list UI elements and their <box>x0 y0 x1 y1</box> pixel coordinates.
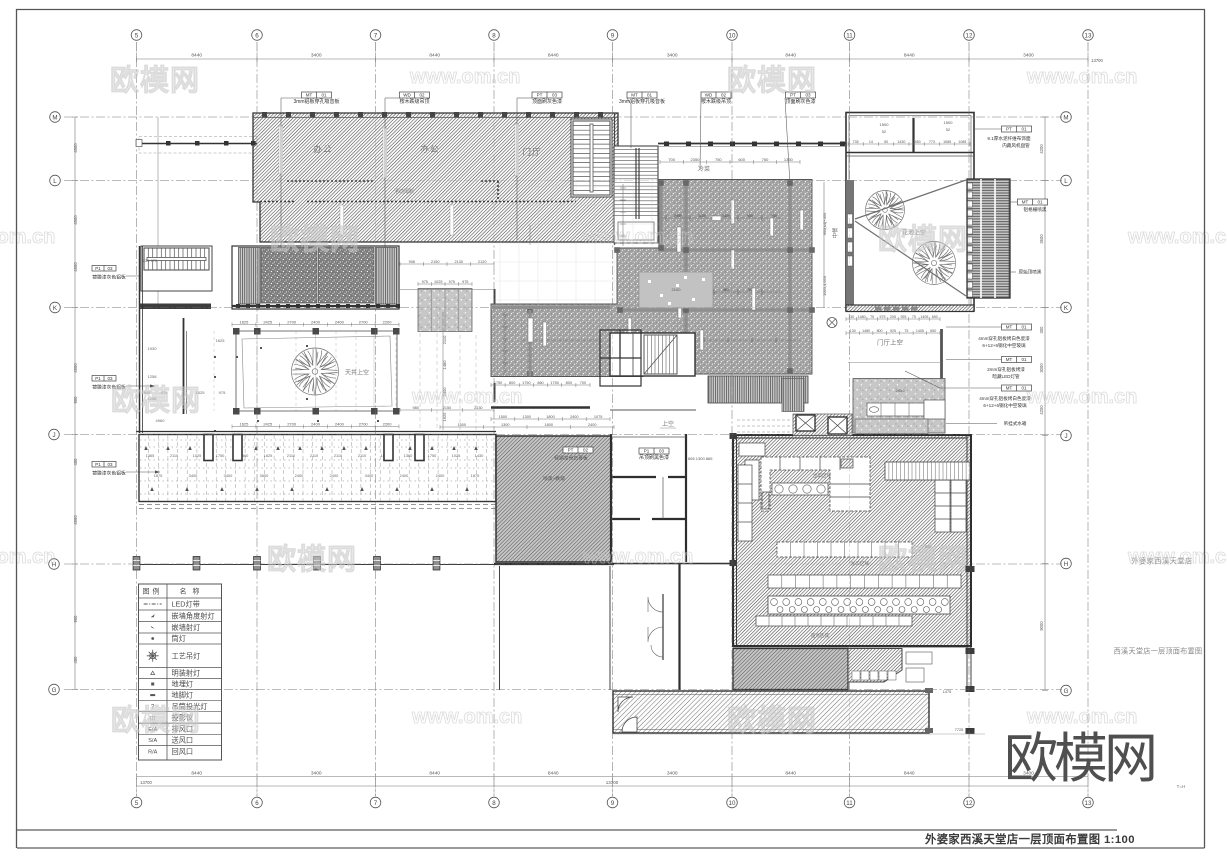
svg-text:2mm穿孔铝板烤漆: 2mm穿孔铝板烤漆 <box>987 366 1025 373</box>
svg-text:450: 450 <box>73 656 78 664</box>
svg-text:内藏风机盘管: 内藏风机盘管 <box>1002 142 1030 149</box>
svg-text:11: 11 <box>846 32 853 39</box>
svg-text:205: 205 <box>890 315 896 319</box>
svg-text:230 770: 230 770 <box>143 258 158 263</box>
svg-text:1480: 1480 <box>858 315 866 319</box>
svg-text:www.om.cn: www.om.cn <box>0 226 55 248</box>
svg-text:www.om.cn: www.om.cn <box>582 546 693 568</box>
svg-text:欧模网: 欧模网 <box>267 543 357 576</box>
svg-text:3400: 3400 <box>189 473 198 478</box>
svg-text:700: 700 <box>668 157 675 162</box>
svg-text:2110: 2110 <box>310 453 319 458</box>
svg-text:700: 700 <box>580 381 586 385</box>
svg-text:喷黑+跌级: 喷黑+跌级 <box>543 475 565 482</box>
svg-text:天井上空: 天井上空 <box>345 369 369 377</box>
svg-text:3600: 3600 <box>260 473 269 478</box>
svg-text:01: 01 <box>647 93 653 98</box>
svg-text:T=H: T=H <box>1177 784 1186 789</box>
svg-text:PT: PT <box>568 448 574 453</box>
svg-text:50: 50 <box>884 140 888 144</box>
svg-text:1500: 1500 <box>458 423 466 427</box>
svg-text:欧模网: 欧模网 <box>110 64 200 97</box>
svg-text:6: 6 <box>255 32 259 39</box>
svg-text:925: 925 <box>900 315 906 319</box>
svg-text:www.om.cn: www.om.cn <box>1127 546 1227 568</box>
svg-text:13700: 13700 <box>1091 58 1103 63</box>
svg-text:2200: 2200 <box>383 319 393 324</box>
svg-text:3mm铝板穿孔吸音板: 3mm铝板穿孔吸音板 <box>619 98 665 105</box>
svg-text:2110: 2110 <box>358 453 367 458</box>
svg-text:03: 03 <box>659 449 665 454</box>
svg-text:工艺吊灯: 工艺吊灯 <box>172 651 201 660</box>
svg-text:1258: 1258 <box>148 374 158 379</box>
svg-text:950: 950 <box>723 288 729 292</box>
svg-text:8440: 8440 <box>904 771 915 777</box>
svg-text:1405: 1405 <box>916 329 924 333</box>
svg-text:735: 735 <box>853 140 859 144</box>
svg-text:2350: 2350 <box>691 157 701 162</box>
svg-text:52: 52 <box>946 128 950 132</box>
svg-text:650: 650 <box>932 315 938 319</box>
svg-text:1025: 1025 <box>434 280 442 284</box>
svg-text:轻钢龙骨石膏板: 轻钢龙骨石膏板 <box>554 455 588 462</box>
svg-text:筒灯: 筒灯 <box>172 634 186 643</box>
svg-text:1500: 1500 <box>944 120 954 125</box>
svg-text:1750: 1750 <box>216 453 225 458</box>
svg-text:2400: 2400 <box>335 421 345 426</box>
svg-text:3000: 3000 <box>1039 363 1044 373</box>
svg-text:1875: 1875 <box>471 473 480 478</box>
svg-text:800: 800 <box>877 329 883 333</box>
svg-text:7: 7 <box>374 32 378 39</box>
svg-text:12: 12 <box>966 800 973 807</box>
svg-text:1300: 1300 <box>522 415 530 419</box>
svg-text:1300: 1300 <box>501 423 509 427</box>
svg-text:桉木跌级吊顶: 桉木跌级吊顶 <box>399 98 429 105</box>
svg-text:1025: 1025 <box>452 453 461 458</box>
svg-text:13: 13 <box>1085 32 1092 39</box>
svg-text:8440: 8440 <box>191 771 202 777</box>
svg-text:J: J <box>52 432 55 439</box>
svg-text:2130: 2130 <box>455 260 463 264</box>
svg-text:2110: 2110 <box>287 453 296 458</box>
svg-text:2425: 2425 <box>263 319 273 324</box>
svg-text:8440: 8440 <box>429 771 440 777</box>
svg-text:975: 975 <box>462 280 468 284</box>
svg-text:外婆家西溪天堂店一层顶面布置图 1:100: 外婆家西溪天堂店一层顶面布置图 1:100 <box>924 832 1135 846</box>
svg-text:WD: WD <box>403 93 411 98</box>
svg-text:3400: 3400 <box>311 53 322 59</box>
svg-text:975: 975 <box>422 280 428 284</box>
svg-text:www.om.cn: www.om.cn <box>1026 706 1137 728</box>
svg-text:L: L <box>53 178 57 185</box>
svg-text:750: 750 <box>762 157 769 162</box>
svg-text:2400: 2400 <box>335 319 345 324</box>
svg-text:原始顶喷黑: 原始顶喷黑 <box>1019 269 1042 276</box>
svg-text:暗藏LED灯管: 暗藏LED灯管 <box>992 373 1020 380</box>
svg-text:2400: 2400 <box>311 319 321 324</box>
svg-text:欧模网: 欧模网 <box>111 384 201 417</box>
svg-text:1625: 1625 <box>216 338 226 343</box>
svg-text:4560: 4560 <box>73 515 78 525</box>
svg-text:MT: MT <box>1006 357 1013 362</box>
svg-text:西溪天堂店一层顶面布置图: 西溪天堂店一层顶面布置图 <box>1114 647 1203 656</box>
svg-text:中餐: 中餐 <box>831 227 839 239</box>
svg-text:03: 03 <box>107 462 113 467</box>
svg-text:MT: MT <box>1022 200 1029 205</box>
svg-text:1450: 1450 <box>913 140 921 144</box>
svg-text:900: 900 <box>73 396 78 404</box>
svg-text:欧模网: 欧模网 <box>270 223 360 256</box>
svg-text:8440: 8440 <box>548 771 559 777</box>
svg-text:1360: 1360 <box>404 453 413 458</box>
svg-text:01: 01 <box>1021 325 1027 330</box>
svg-text:2150: 2150 <box>431 260 439 264</box>
svg-text:1800: 1800 <box>546 415 554 419</box>
svg-text:9: 9 <box>611 32 615 39</box>
svg-text:10: 10 <box>729 32 736 39</box>
svg-text:1800: 1800 <box>545 423 553 427</box>
svg-text:3400: 3400 <box>224 473 233 478</box>
svg-text:桉木跌级吊顶: 桉木跌级吊顶 <box>701 98 731 105</box>
svg-text:www.om.cn: www.om.cn <box>1026 386 1137 408</box>
svg-text:欧模网: 欧模网 <box>727 64 817 97</box>
svg-text:9.1厚水泥纤维布饰面: 9.1厚水泥纤维布饰面 <box>987 135 1031 142</box>
svg-text:3400: 3400 <box>667 53 678 59</box>
svg-text:1475: 1475 <box>943 690 951 694</box>
svg-text:9: 9 <box>611 800 615 807</box>
svg-text:3mm铝板穿孔吸音板: 3mm铝板穿孔吸音板 <box>293 98 339 105</box>
svg-text:1750: 1750 <box>522 381 530 385</box>
svg-text:1625: 1625 <box>239 421 249 426</box>
svg-text:5: 5 <box>135 32 139 39</box>
svg-text:2700: 2700 <box>287 319 297 324</box>
svg-text:1500: 1500 <box>880 122 890 127</box>
svg-text:回风口: 回风口 <box>172 747 194 756</box>
svg-text:01: 01 <box>1037 200 1043 205</box>
svg-text:LED灯带: LED灯带 <box>172 600 200 609</box>
svg-text:02: 02 <box>419 93 425 98</box>
svg-text:02: 02 <box>721 93 727 98</box>
svg-text:图例: 图例 <box>143 587 163 596</box>
svg-text:欧模网: 欧模网 <box>878 223 968 256</box>
svg-text:5: 5 <box>135 800 139 807</box>
svg-text:4500: 4500 <box>73 143 78 153</box>
svg-text:MT: MT <box>1006 325 1013 330</box>
svg-text:01: 01 <box>1021 127 1027 132</box>
svg-text:1350: 1350 <box>784 157 794 162</box>
svg-text:PT: PT <box>537 93 543 98</box>
svg-text:1300: 1300 <box>722 214 730 218</box>
svg-text:900: 900 <box>73 615 78 623</box>
svg-text:800: 800 <box>509 381 515 385</box>
svg-text:2400: 2400 <box>400 473 409 478</box>
svg-text:MT: MT <box>1006 386 1013 391</box>
svg-text:8440: 8440 <box>191 53 202 59</box>
svg-text:13700: 13700 <box>140 780 152 785</box>
svg-text:G: G <box>52 687 57 694</box>
svg-text:名称: 名称 <box>180 587 206 596</box>
svg-text:L: L <box>1064 178 1068 185</box>
svg-text:3600: 3600 <box>1039 234 1044 244</box>
svg-text:975: 975 <box>449 280 455 284</box>
svg-text:1930: 1930 <box>148 346 158 351</box>
svg-text:镀膜漆灰色铝板: 镀膜漆灰色铝板 <box>92 470 126 477</box>
svg-text:1365: 1365 <box>146 453 155 458</box>
svg-text:PT: PT <box>1006 127 1012 132</box>
svg-text:2110: 2110 <box>170 453 179 458</box>
svg-text:950: 950 <box>747 214 753 218</box>
svg-text:03: 03 <box>107 376 113 381</box>
svg-text:8: 8 <box>492 800 496 807</box>
svg-text:欧模网: 欧模网 <box>111 704 201 737</box>
svg-text:1480: 1480 <box>442 360 447 370</box>
svg-text:吊顶刷黑色漆: 吊顶刷黑色漆 <box>639 454 669 461</box>
svg-text:4500: 4500 <box>73 363 78 373</box>
svg-text:M: M <box>1063 114 1068 121</box>
svg-text:01: 01 <box>1021 357 1027 362</box>
svg-text:800: 800 <box>566 381 572 385</box>
svg-text:4500: 4500 <box>73 262 78 272</box>
svg-text:8440: 8440 <box>429 53 440 59</box>
svg-text:75: 75 <box>870 315 874 319</box>
svg-text:3400: 3400 <box>667 771 678 777</box>
svg-text:活动隔断: 活动隔断 <box>394 188 414 195</box>
svg-text:4mm穿孔铝板烤白色瓷漆: 4mm穿孔铝板烤白色瓷漆 <box>979 395 1031 402</box>
svg-text:1750: 1750 <box>494 381 502 385</box>
svg-text:75: 75 <box>904 329 908 333</box>
svg-text:8: 8 <box>492 32 496 39</box>
svg-text:2110: 2110 <box>442 335 447 344</box>
svg-text:02: 02 <box>583 448 589 453</box>
svg-text:860: 860 <box>537 381 543 385</box>
svg-text:www.om.cn: www.om.cn <box>582 226 693 248</box>
svg-text:1625: 1625 <box>239 319 249 324</box>
svg-text:www.om.cn: www.om.cn <box>409 66 520 88</box>
svg-text:14: 14 <box>869 140 873 144</box>
svg-text:1750: 1750 <box>428 453 437 458</box>
svg-text:铝格栅喷黑: 铝格栅喷黑 <box>1024 206 1047 213</box>
svg-text:2110: 2110 <box>334 453 343 458</box>
svg-text:R/A: R/A <box>148 749 158 755</box>
svg-text:2100: 2100 <box>672 287 682 292</box>
svg-text:4200: 4200 <box>1039 144 1044 154</box>
svg-text:门厅: 门厅 <box>522 147 541 157</box>
svg-text:1875: 1875 <box>154 473 163 478</box>
svg-text:1150: 1150 <box>698 214 706 218</box>
svg-text:1050,4,650: 1050,4,650 <box>822 275 827 296</box>
svg-text:130: 130 <box>850 329 856 333</box>
svg-text:1625: 1625 <box>264 453 273 458</box>
svg-text:8440: 8440 <box>785 771 796 777</box>
svg-text:2450: 2450 <box>896 388 906 393</box>
svg-text:1430: 1430 <box>897 140 905 144</box>
svg-text:2200: 2200 <box>383 421 393 426</box>
svg-text:7725: 7725 <box>955 728 963 732</box>
svg-text:03: 03 <box>107 266 113 271</box>
svg-text:75: 75 <box>912 315 916 319</box>
svg-text:1085: 1085 <box>943 140 951 144</box>
svg-text:2120: 2120 <box>478 260 486 264</box>
svg-text:欧模网: 欧模网 <box>727 704 817 737</box>
svg-text:450: 450 <box>73 458 78 466</box>
svg-text:P1: P1 <box>95 266 101 271</box>
svg-text:欧模网: 欧模网 <box>1004 729 1154 789</box>
svg-text:G: G <box>1064 688 1069 695</box>
svg-text:上空: 上空 <box>662 420 674 428</box>
svg-text:8440: 8440 <box>785 53 796 59</box>
svg-text:2400: 2400 <box>295 473 304 478</box>
svg-text:2950: 2950 <box>674 214 682 218</box>
svg-text:办公: 办公 <box>313 144 332 154</box>
svg-text:2400: 2400 <box>436 473 445 478</box>
svg-text:www.om.cn: www.om.cn <box>1127 226 1227 248</box>
svg-text:1430: 1430 <box>475 453 484 458</box>
svg-text:P1: P1 <box>644 449 650 454</box>
svg-text:11: 11 <box>846 800 853 807</box>
svg-text:MT: MT <box>306 93 313 98</box>
svg-text:加工区域: 加工区域 <box>851 560 869 567</box>
svg-text:地脚灯: 地脚灯 <box>172 691 194 700</box>
svg-text:镀膜漆灰色铝板: 镀膜漆灰色铝板 <box>92 274 126 281</box>
svg-text:1085: 1085 <box>958 140 966 144</box>
svg-text:600: 600 <box>738 157 745 162</box>
svg-text:750: 750 <box>715 157 722 162</box>
svg-text:908: 908 <box>409 260 415 264</box>
svg-text:嵌墙角度射灯: 嵌墙角度射灯 <box>172 611 215 620</box>
svg-text:吊挂式水箱: 吊挂式水箱 <box>1004 420 1027 427</box>
svg-text:1480: 1480 <box>862 329 870 333</box>
svg-text:8440: 8440 <box>548 53 559 59</box>
svg-text:4mm穿孔铝板烤白色瓷漆: 4mm穿孔铝板烤白色瓷漆 <box>978 335 1030 342</box>
svg-text:嵌墙射灯: 嵌墙射灯 <box>172 623 201 632</box>
svg-text:2400: 2400 <box>330 473 339 478</box>
svg-text:www.om.cn: www.om.cn <box>411 386 522 408</box>
svg-text:900(x4)+450: 900(x4)+450 <box>822 212 827 235</box>
svg-text:2400: 2400 <box>311 421 321 426</box>
svg-text:3400: 3400 <box>1023 53 1034 59</box>
svg-text:665 1300 865: 665 1300 865 <box>688 456 713 461</box>
svg-text:出菜区域: 出菜区域 <box>813 472 831 479</box>
svg-text:6+12+6钢化中空玻璃: 6+12+6钢化中空玻璃 <box>982 342 1026 349</box>
svg-text:773: 773 <box>929 140 935 144</box>
svg-text:J: J <box>1064 433 1067 440</box>
svg-text:575: 575 <box>880 315 886 319</box>
svg-text:6: 6 <box>255 800 259 807</box>
svg-text:2400: 2400 <box>588 423 596 427</box>
svg-text:130: 130 <box>848 315 854 319</box>
svg-text:300: 300 <box>1039 326 1044 334</box>
svg-text:13: 13 <box>1085 800 1092 807</box>
svg-text:2700: 2700 <box>359 421 369 426</box>
svg-text:925: 925 <box>890 329 896 333</box>
svg-text:www.om.cn: www.om.cn <box>0 546 55 568</box>
svg-text:1025: 1025 <box>193 453 202 458</box>
svg-text:1500: 1500 <box>499 415 507 419</box>
svg-text:03: 03 <box>552 93 558 98</box>
svg-text:地埋灯: 地埋灯 <box>172 680 194 689</box>
svg-text:2425: 2425 <box>263 421 273 426</box>
svg-text:www.om.cn: www.om.cn <box>411 706 522 728</box>
svg-text:H: H <box>1064 561 1068 568</box>
svg-text:MT: MT <box>631 93 638 98</box>
svg-text:9000: 9000 <box>1039 621 1044 631</box>
svg-text:门厅上空: 门厅上空 <box>877 338 904 347</box>
svg-text:52: 52 <box>882 130 886 134</box>
svg-text:3400: 3400 <box>311 771 322 777</box>
svg-text:1405: 1405 <box>920 315 928 319</box>
svg-text:WD: WD <box>705 93 713 98</box>
svg-text:750: 750 <box>771 214 777 218</box>
svg-text:2700: 2700 <box>287 421 297 426</box>
svg-text:10: 10 <box>729 800 736 807</box>
svg-text:7: 7 <box>374 800 378 807</box>
svg-text:1075: 1075 <box>594 415 602 419</box>
svg-text:1750: 1750 <box>550 381 558 385</box>
svg-text:8440: 8440 <box>904 53 915 59</box>
svg-text:顶面刷灰色漆: 顶面刷灰色漆 <box>785 98 815 105</box>
svg-text:650: 650 <box>930 329 936 333</box>
svg-text:明装射灯: 明装射灯 <box>172 669 201 678</box>
svg-text:12: 12 <box>966 32 973 39</box>
svg-text:6+12+6钢化中空玻璃: 6+12+6钢化中空玻璃 <box>983 402 1027 409</box>
svg-text:2400: 2400 <box>570 415 578 419</box>
svg-text:975: 975 <box>219 390 226 395</box>
svg-text:01: 01 <box>321 93 327 98</box>
svg-text:4960: 4960 <box>156 418 166 423</box>
svg-text:P1: P1 <box>95 376 101 381</box>
svg-text:S/A: S/A <box>148 738 157 744</box>
svg-text:M: M <box>52 114 57 121</box>
svg-text:2700: 2700 <box>359 319 369 324</box>
svg-text:www.om.cn: www.om.cn <box>1026 66 1137 88</box>
svg-text:面点区域: 面点区域 <box>811 632 829 639</box>
svg-text:3400: 3400 <box>365 473 374 478</box>
svg-text:冷菜: 冷菜 <box>698 165 710 173</box>
svg-text:顶面刷灰色漆: 顶面刷灰色漆 <box>532 98 562 105</box>
svg-text:1625: 1625 <box>442 412 447 422</box>
svg-text:P1: P1 <box>95 462 101 467</box>
svg-text:4500: 4500 <box>73 215 78 225</box>
svg-text:办公: 办公 <box>420 144 439 154</box>
svg-text:欧模网: 欧模网 <box>878 543 968 576</box>
